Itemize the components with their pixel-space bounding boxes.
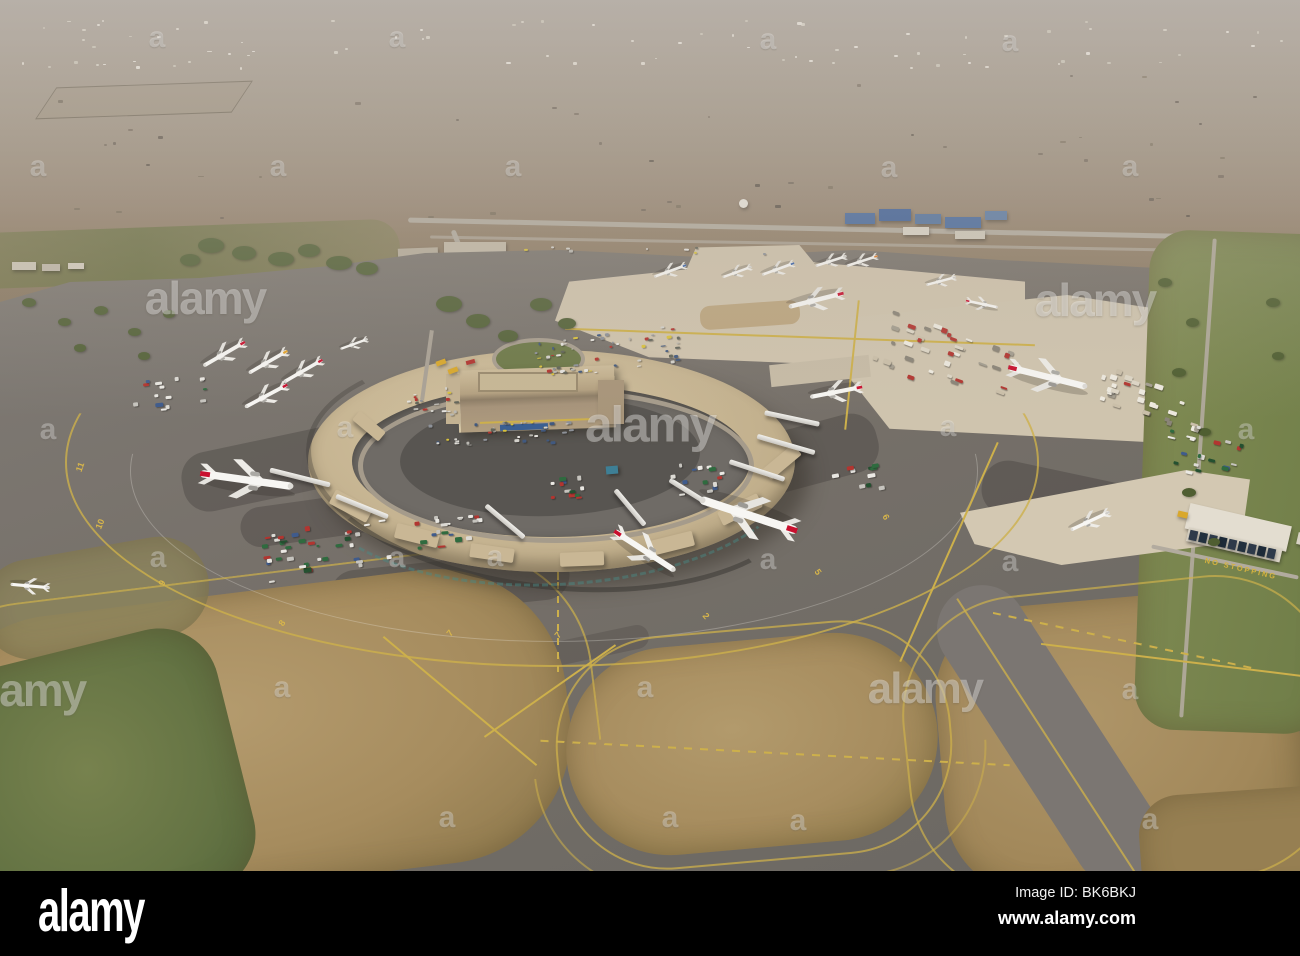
watermark-letter: a xyxy=(389,21,406,55)
watermark-letter: a xyxy=(270,150,287,184)
stock-photo-page: 11109877562NO STOPPING aaaaaaaaaaaaaaaaa… xyxy=(0,0,1300,956)
watermark-letter: a xyxy=(30,150,47,184)
watermark-letter: a xyxy=(150,541,167,575)
footer-bar: alamy Image ID: BK6BKJ www.alamy.com xyxy=(0,871,1300,956)
watermark-letter: a xyxy=(337,411,354,445)
watermark-letter: a xyxy=(1122,150,1139,184)
watermark-logo: alamy xyxy=(0,663,85,717)
watermark-letter: a xyxy=(487,540,504,574)
alamy-url[interactable]: www.alamy.com xyxy=(998,908,1136,929)
watermark-logo: alamy xyxy=(1035,273,1155,327)
watermark-letter: a xyxy=(662,801,679,835)
watermark-letter: a xyxy=(389,541,406,575)
watermark-letter: a xyxy=(439,801,456,835)
watermark-letter: a xyxy=(760,543,777,577)
watermark-logo: alamy xyxy=(868,662,982,713)
watermark-letter: a xyxy=(790,804,807,838)
watermark-letter: a xyxy=(760,23,777,57)
aerial-photo: 11109877562NO STOPPING aaaaaaaaaaaaaaaaa… xyxy=(0,0,1300,871)
watermark-letter: a xyxy=(1002,25,1019,59)
watermark-letter: a xyxy=(881,151,898,185)
watermark-letter: a xyxy=(1238,413,1255,447)
watermark-letter: a xyxy=(1142,803,1159,837)
watermark-letter: a xyxy=(274,671,291,705)
image-id: Image ID: BK6BKJ xyxy=(998,885,1136,901)
watermark-logo: alamy xyxy=(585,395,715,453)
watermark-logo: alamy xyxy=(145,271,265,325)
watermark-letter: a xyxy=(637,671,654,705)
watermark-letter: a xyxy=(1002,545,1019,579)
alamy-logo[interactable]: alamy xyxy=(38,877,144,945)
watermark-layer: aaaaaaaaaaaaaaaaaaaaaaaaaalamyalamyalamy… xyxy=(0,0,1300,871)
watermark-letter: a xyxy=(505,150,522,184)
watermark-letter: a xyxy=(40,413,57,447)
watermark-letter: a xyxy=(149,21,166,55)
watermark-letter: a xyxy=(1122,673,1139,707)
watermark-letter: a xyxy=(940,410,957,444)
